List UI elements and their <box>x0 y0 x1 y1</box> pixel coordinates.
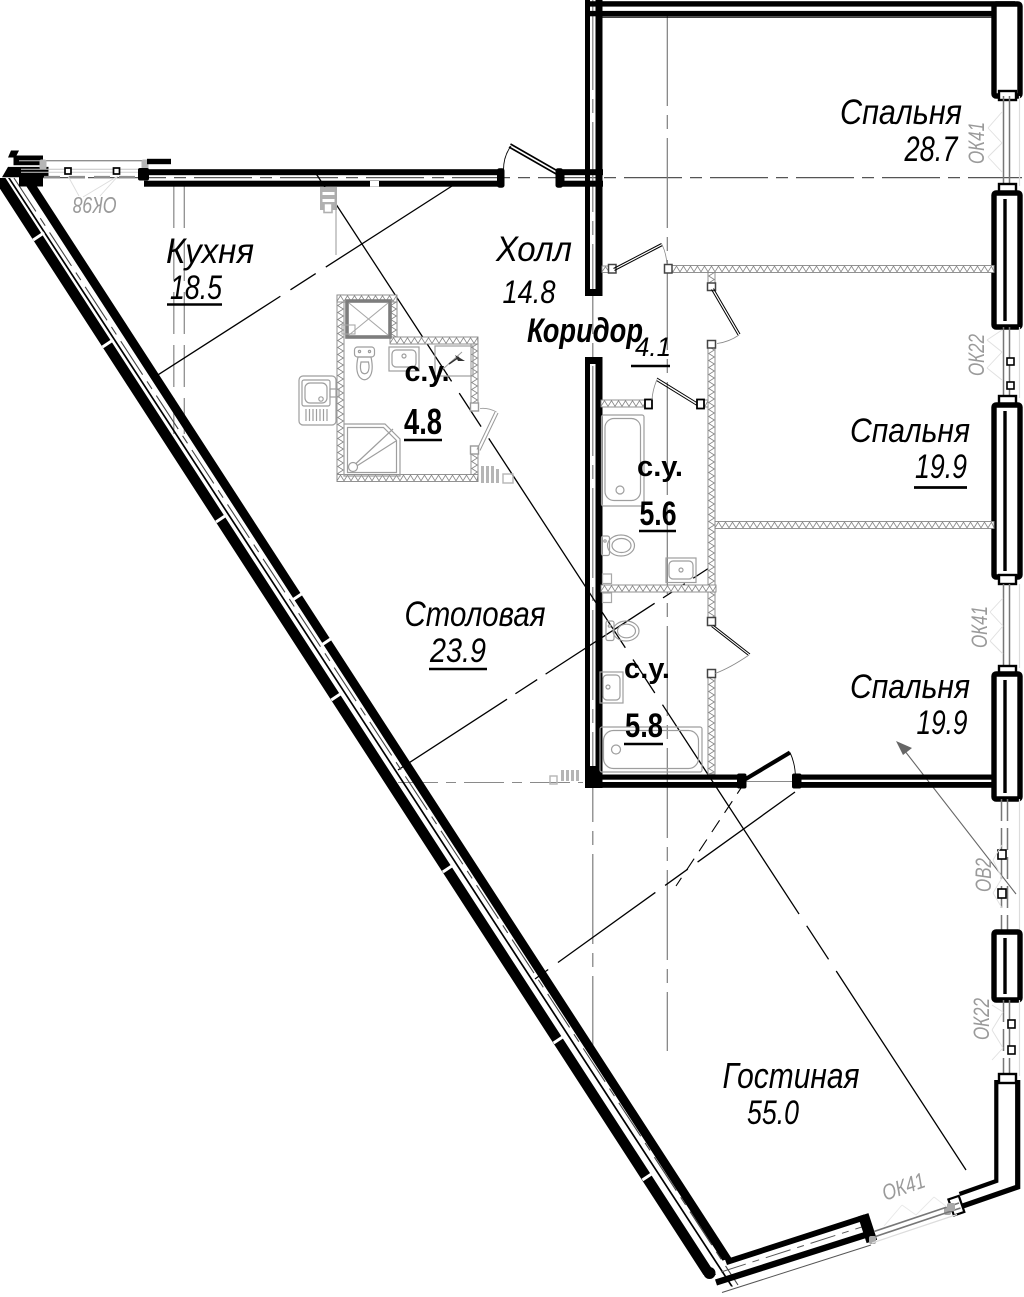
svg-text:с.у.: с.у. <box>405 356 450 388</box>
svg-text:ОК98: ОК98 <box>73 192 117 218</box>
svg-text:5.6: 5.6 <box>640 495 677 533</box>
svg-text:ОК22: ОК22 <box>969 998 994 1040</box>
svg-text:ОК41: ОК41 <box>967 606 992 648</box>
svg-text:55.0: 55.0 <box>747 1094 799 1132</box>
svg-text:14.8: 14.8 <box>503 274 556 310</box>
svg-text:5.8: 5.8 <box>625 707 663 745</box>
svg-text:ОВ2: ОВ2 <box>971 858 996 892</box>
svg-text:4.8: 4.8 <box>404 401 442 442</box>
svg-text:ОК41: ОК41 <box>964 122 989 164</box>
svg-text:23.9: 23.9 <box>429 632 486 670</box>
svg-text:19.9: 19.9 <box>917 704 968 742</box>
svg-text:с.у.: с.у. <box>637 451 683 483</box>
svg-text:28.7: 28.7 <box>904 130 959 169</box>
svg-text:Холл: Холл <box>495 230 572 269</box>
svg-text:с.у.: с.у. <box>624 653 670 685</box>
svg-text:Спальня: Спальня <box>840 93 962 132</box>
svg-text:18.5: 18.5 <box>170 269 222 307</box>
svg-text:19.9: 19.9 <box>915 448 967 486</box>
svg-text:ОК22: ОК22 <box>964 334 989 376</box>
svg-text:Спальня: Спальня <box>850 668 970 706</box>
svg-text:Кухня: Кухня <box>166 232 254 271</box>
svg-text:Коридор: Коридор <box>527 312 643 350</box>
svg-text:Спальня: Спальня <box>850 412 970 450</box>
svg-text:4.1: 4.1 <box>635 332 671 362</box>
svg-text:Столовая: Столовая <box>405 595 546 634</box>
svg-text:Гостиная: Гостиная <box>723 1055 860 1096</box>
